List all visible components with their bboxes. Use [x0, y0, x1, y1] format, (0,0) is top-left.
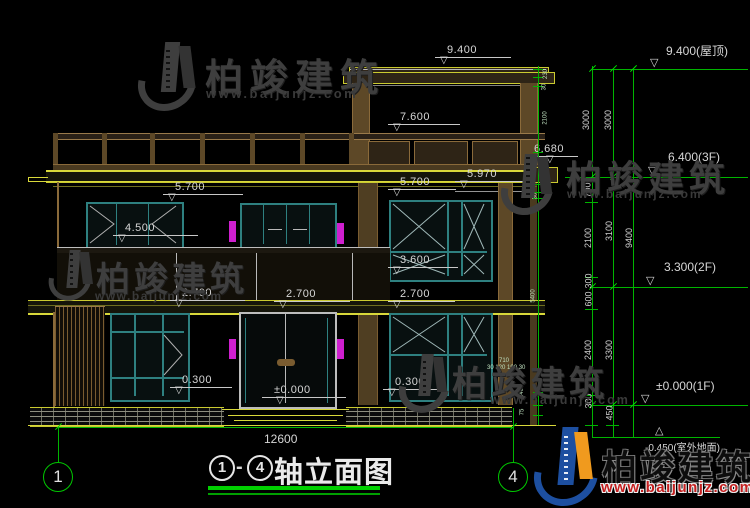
floor-label: 9.400(屋顶) [666, 42, 728, 59]
elevation-label: 3.600 [400, 254, 430, 266]
axis-extension-line [513, 408, 514, 462]
dim-line [633, 69, 634, 437]
dim-value: 75 [519, 409, 525, 416]
door-mullion [286, 205, 287, 244]
ground-line [28, 425, 556, 426]
elevation-triangle-icon: ▽ [175, 386, 183, 396]
wall-lamp [337, 223, 344, 244]
brand-logo-icon [531, 423, 603, 501]
floor-label: 3.300(2F) [664, 260, 716, 274]
elevation-marker: 5.700▽ [163, 181, 243, 195]
watermark-url: www.baijunjz.com [206, 86, 358, 101]
watermark-url: www.baijunjz.com [490, 393, 630, 407]
door-mullion [309, 205, 310, 244]
step-line [228, 415, 343, 416]
title-separator: - [236, 456, 243, 479]
brand-url: www.baijunjz.com [601, 479, 750, 496]
floor-label: ±0.000(1F) [656, 379, 715, 393]
elevation-triangle-icon: ▽ [276, 396, 284, 406]
elevation-label: 9.400 [447, 44, 477, 56]
watermark-logo-icon [48, 248, 98, 296]
watermark-logo-icon [398, 352, 452, 406]
vertical-siding [55, 306, 105, 406]
elevation-marker: 2.700▽ [274, 288, 350, 302]
dim-value: 300 [584, 273, 594, 288]
wall-lamp [229, 339, 236, 359]
title-underline [208, 486, 380, 490]
elevation-marker: 2.700▽ [388, 288, 455, 302]
elevation-marker: 9.400▽ [435, 44, 511, 58]
watermark-logo-icon [137, 40, 203, 104]
axis-extension-line [58, 427, 59, 462]
elevation-label: 7.600 [400, 111, 430, 123]
title-underline-2 [208, 493, 380, 495]
elevation-label: 5.700 [400, 176, 430, 188]
elevation-triangle-icon: ▽ [460, 180, 468, 190]
wall-top-line [362, 85, 520, 86]
axis-number: 1 [53, 467, 62, 486]
dim-value: 2100 [583, 228, 593, 248]
dim-line [613, 69, 614, 437]
spandrel-divider [256, 253, 257, 300]
dim-value: 2100 [543, 111, 549, 124]
elevation-triangle-icon: ▽ [393, 123, 401, 133]
watermark-logo-icon [500, 152, 558, 208]
watermark-url: www.baijunjz.com [567, 187, 703, 201]
elevation-marker: ±0.000▽ [262, 384, 346, 398]
terrace-railing-top-rail [53, 133, 545, 140]
dim-value: 3000 [603, 110, 613, 130]
overall-dim-line [58, 427, 513, 428]
slide-arrow [293, 229, 307, 230]
dim-value: 30 [541, 84, 547, 91]
door-handle [277, 359, 295, 366]
dim-value: 3100 [604, 221, 614, 241]
elevation-triangle-icon: ▽ [168, 193, 176, 203]
elevation-triangle-icon: ▽ [388, 388, 396, 398]
elevation-triangle-icon: ▽ [393, 266, 401, 276]
title-axis-circle-left: 1 [209, 455, 235, 481]
overall-dim-value: 12600 [264, 432, 297, 446]
elevation-label: 2.700 [286, 288, 316, 300]
step-line [234, 420, 337, 421]
elevation-marker: 3.600▽ [388, 254, 458, 268]
wall-lamp [337, 339, 344, 359]
elevation-label: 2.700 [400, 288, 430, 300]
watermark-url: www.baijunjz.com [95, 289, 223, 303]
elevation-triangle-icon: ▽ [440, 56, 448, 66]
elevation-label: 0.300 [182, 374, 212, 386]
elevation-label: 4.500 [125, 222, 155, 234]
elevation-label: 5.970 [467, 168, 497, 180]
door-leaf-frame [245, 318, 246, 403]
dim-value: 9400 [624, 228, 634, 248]
elevation-triangle-icon: ▽ [393, 300, 401, 310]
elevation-drawing-canvas: 9.400▽ 7.600▽ 6.680▽ 5.700▽ 5.970▽ 5.700… [0, 0, 750, 508]
elevation-label: 5.700 [175, 181, 205, 193]
dim-value: 450 [605, 405, 615, 420]
title-axis-circle-right: 4 [247, 455, 273, 481]
dim-value: 230 [543, 69, 549, 79]
spandrel-divider [352, 253, 353, 300]
step-line [222, 409, 349, 410]
dim-value: 600 [584, 291, 594, 306]
dim-value: 3000 [581, 110, 591, 130]
door-mullion [263, 205, 264, 244]
elevation-triangle-icon: ▽ [279, 300, 287, 310]
elevation-triangle-icon: ▽ [118, 234, 126, 244]
wall-lamp [229, 221, 236, 242]
axis-bubble-4: 4 [498, 462, 528, 492]
drawing-title: 轴立面图 [274, 449, 394, 491]
roof-slab-left-step [28, 177, 48, 178]
elevation-marker: 7.600▽ [388, 111, 460, 125]
elevation-triangle-icon: ▽ [393, 188, 401, 198]
elevation-marker: 4.500▽ [113, 222, 198, 236]
elevation-marker: 5.700▽ [388, 176, 456, 190]
elevation-marker: 0.300▽ [170, 374, 232, 388]
axis-bubble-1: 1 [43, 462, 73, 492]
door-2f-center [240, 203, 337, 250]
slide-arrow [268, 229, 282, 230]
dim-value: 5400 [531, 289, 537, 302]
axis-number: 4 [508, 467, 517, 486]
